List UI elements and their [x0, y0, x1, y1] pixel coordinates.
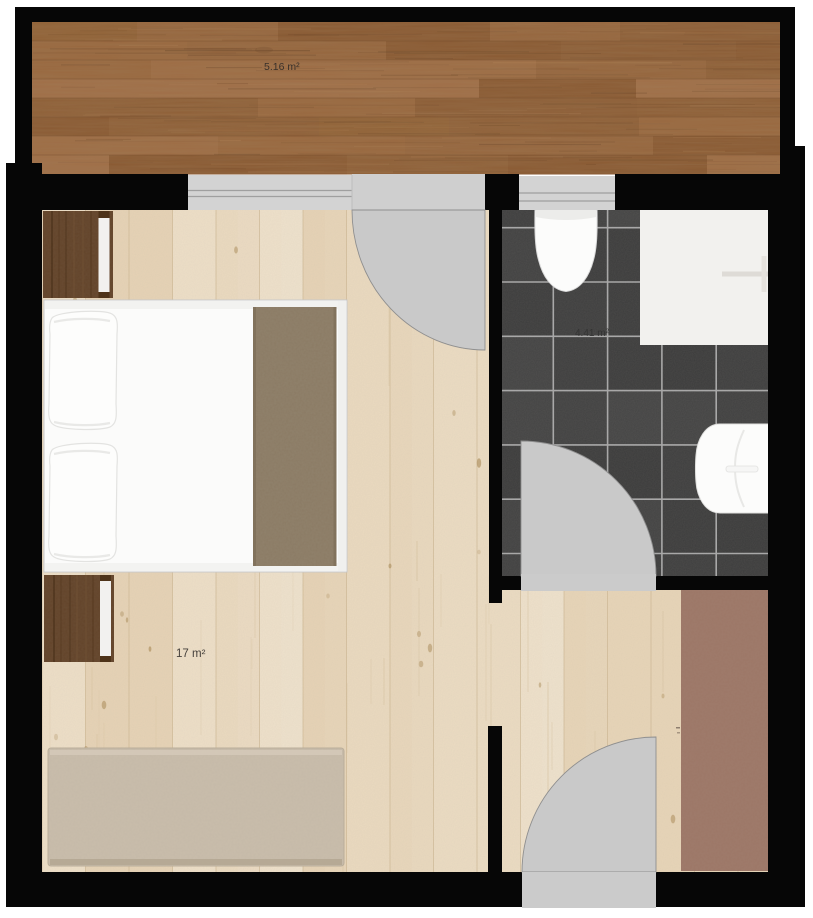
svg-text:17 m²: 17 m² [176, 648, 206, 660]
svg-text:4.41 m²: 4.41 m² [575, 328, 610, 339]
svg-text:5.16 m²: 5.16 m² [264, 61, 300, 73]
